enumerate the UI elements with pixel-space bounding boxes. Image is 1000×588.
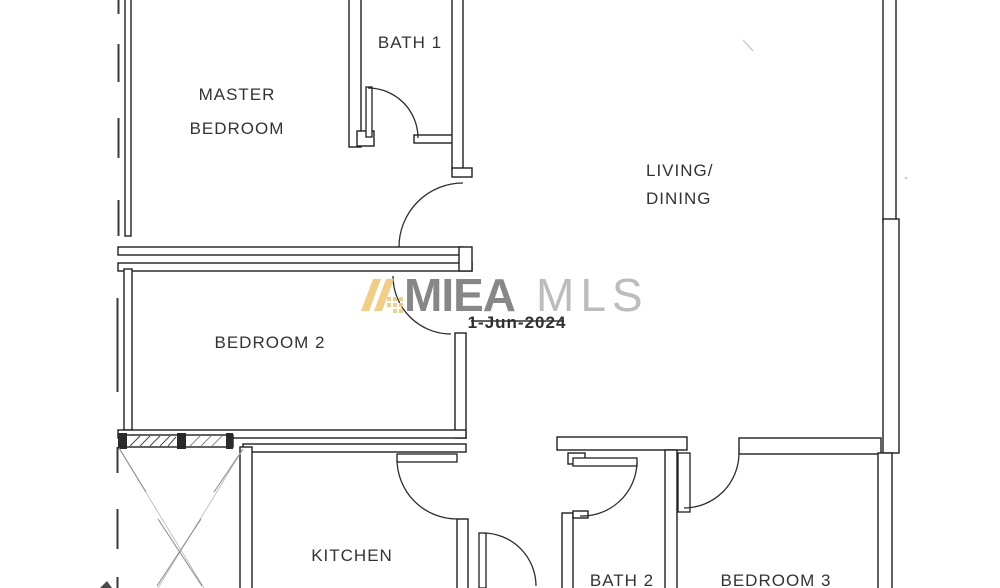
watermark-logo-grid	[387, 297, 403, 313]
door-arc-bedroom3	[684, 453, 739, 508]
room-label-bath1: BATH 1	[378, 33, 442, 52]
wall-bath2-left	[562, 513, 573, 588]
door-leaf-bath1	[366, 87, 372, 137]
wall-master-bottom	[118, 247, 463, 255]
wall-bath2-top	[557, 437, 687, 450]
room-label-bedroom3: BEDROOM 3	[720, 571, 831, 588]
floor-plan: MASTER BEDROOM BATH 1 LIVING/ DINING BED…	[0, 0, 1000, 588]
wall-bedroom2-left	[124, 269, 132, 430]
floor-plan-drawing: MASTER BEDROOM BATH 1 LIVING/ DINING BED…	[0, 0, 1000, 588]
wall-corridor	[452, 0, 463, 170]
door-arc-bath2	[580, 463, 637, 516]
window-symbol-bedroom2	[118, 433, 233, 449]
door-leaf-bath2	[573, 458, 637, 466]
wall-bedroom3-left	[665, 450, 677, 588]
door-arc-kitchen	[397, 459, 457, 519]
room-label-living-dining-line2: DINING	[646, 189, 712, 208]
wall-corridor-cap	[452, 168, 472, 177]
wall-connector	[459, 247, 472, 271]
wall-fragment-bottom-left	[100, 581, 112, 588]
door-leaf-bedroom3	[678, 453, 690, 512]
wall-bedroom3-top	[739, 438, 881, 454]
wall-right-mid	[883, 219, 899, 453]
wall-kitchen-top	[243, 444, 466, 452]
door-arc-bath1	[368, 88, 418, 138]
door-arc-master-bedroom	[399, 183, 463, 247]
room-label-bath2: BATH 2	[590, 571, 654, 588]
wall-right-top	[883, 0, 896, 222]
room-label-living-dining-line1: LIVING/	[646, 161, 713, 180]
watermark-date: 1-Jun-2024	[468, 313, 567, 332]
wall-right-bottom	[878, 453, 892, 588]
wall-bath2-left-jamb	[573, 511, 588, 518]
door-arc-vestibule	[483, 533, 536, 586]
room-label-master-bedroom-line2: BEDROOM	[190, 119, 285, 138]
wall-master-left	[125, 0, 131, 236]
door-leaf-kitchen	[397, 454, 457, 462]
room-label-bedroom2: BEDROOM 2	[214, 333, 325, 352]
room-label-kitchen: KITCHEN	[311, 546, 393, 565]
wall-kitchen-left	[240, 447, 252, 588]
wall-kitchen-right	[457, 519, 468, 588]
room-label-master-bedroom-line1: MASTER	[199, 85, 276, 104]
watermark: MIEA MLS 1-Jun-2024	[361, 269, 649, 332]
door-leaf-vestibule	[479, 533, 486, 588]
wall-bath1-left	[349, 0, 361, 147]
yard-hatch	[119, 448, 243, 588]
wall-bedroom2-right	[455, 333, 466, 438]
